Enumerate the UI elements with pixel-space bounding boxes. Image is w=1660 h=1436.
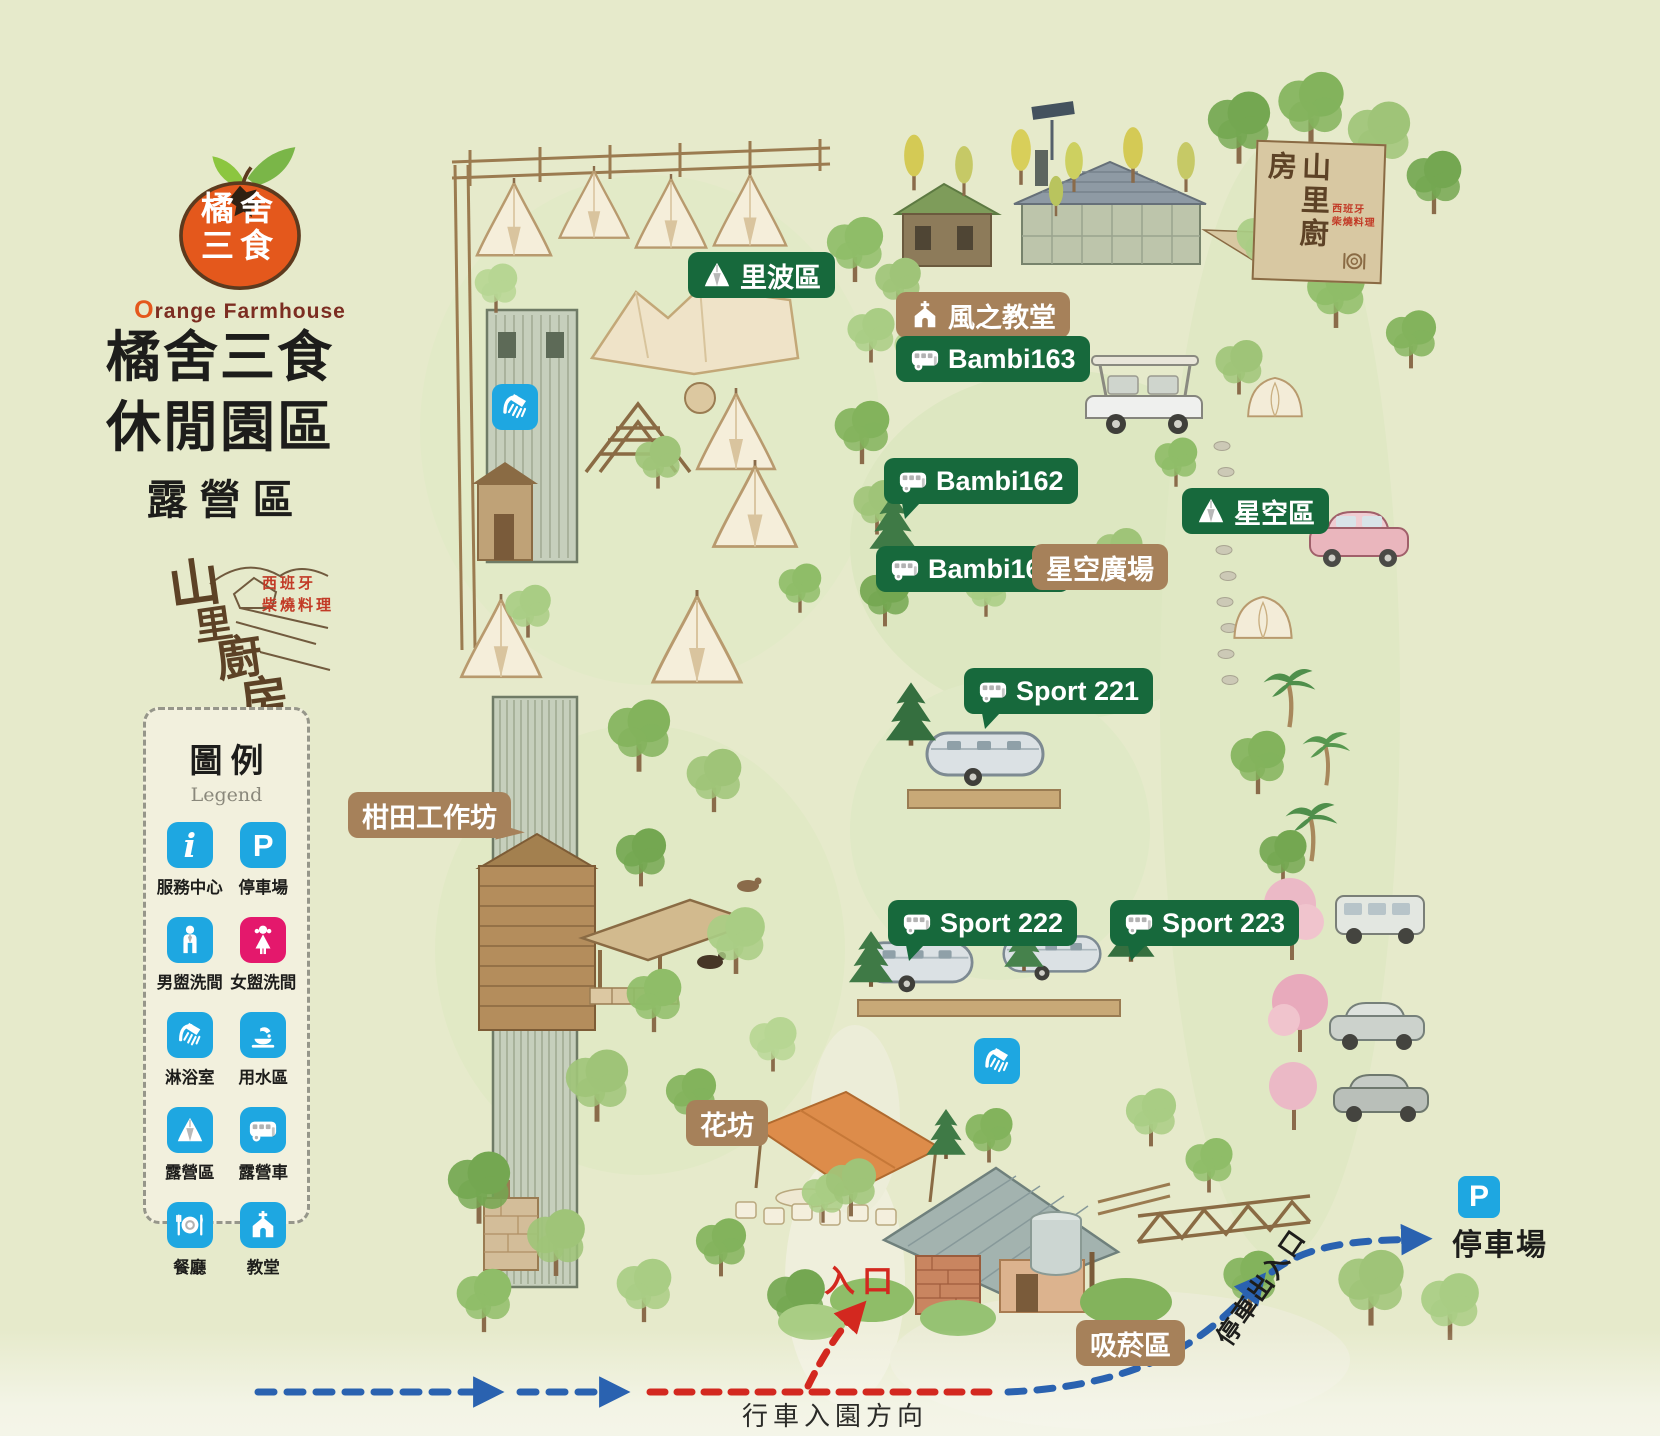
page-title-line1: 橘舍三食 <box>96 312 344 392</box>
legend-item-shower: 淋浴室 <box>154 1012 226 1088</box>
farm-buildings <box>896 101 1256 266</box>
legend-item-label: 男盥洗間 <box>157 969 223 993</box>
label-sport221[interactable]: Sport 221 <box>964 668 1153 714</box>
legend-item-church: 教堂 <box>228 1202 300 1278</box>
restaurant-icon <box>167 1202 213 1248</box>
tent-icon <box>1196 496 1226 526</box>
legend-item-service-center: i 服務中心 <box>154 822 226 898</box>
logo-text: 橘舍 三食 <box>140 190 340 264</box>
label-smoking-area[interactable]: 吸菸區 <box>1076 1320 1185 1366</box>
entrance-label: 入口 <box>824 1256 900 1301</box>
rv-icon <box>902 908 932 938</box>
church-icon <box>240 1202 286 1248</box>
label-star-area[interactable]: 星空區 <box>1182 488 1329 534</box>
tent-icon <box>167 1107 213 1153</box>
legend-item-label: 停車場 <box>239 874 289 898</box>
info-icon: i <box>167 822 213 868</box>
mountain-kitchen-logo: 山 里 廚 房 西班牙 柴燒料理 <box>150 532 350 692</box>
legend-panel: 圖例 Legend i 服務中心 P 停車場 男盥洗間 女盥洗間 淋浴室 用水區 <box>143 707 310 1224</box>
shower-icon[interactable] <box>974 1038 1020 1084</box>
label-pointer <box>906 945 924 961</box>
label-text: Sport 223 <box>1162 908 1285 939</box>
women-restroom-icon <box>240 917 286 963</box>
tent-icon <box>702 260 732 290</box>
label-text: 里波區 <box>740 256 821 295</box>
label-sport222[interactable]: Sport 222 <box>888 900 1077 946</box>
legend-item-rv: 露營車 <box>228 1107 300 1183</box>
label-bambi163[interactable]: Bambi163 <box>896 336 1090 382</box>
label-pointer <box>1128 945 1146 961</box>
legend-item-women-restroom: 女盥洗間 <box>228 917 300 993</box>
label-text: 星空區 <box>1234 492 1315 531</box>
legend-item-parking: P 停車場 <box>228 822 300 898</box>
legend-item-label: 淋浴室 <box>165 1064 215 1088</box>
shower-building <box>472 310 577 562</box>
shower-icon <box>167 1012 213 1058</box>
logo-text-line2: 三食 <box>140 227 340 264</box>
legend-item-label: 服務中心 <box>157 874 223 898</box>
legend-item-camping: 露營區 <box>154 1107 226 1183</box>
legend-subtitle: Legend <box>146 784 307 806</box>
legend-item-label: 露營車 <box>239 1159 289 1183</box>
signboard-tagline-line2: 柴燒料理 <box>1331 215 1375 230</box>
plate-icon <box>1342 249 1367 274</box>
legend-item-label: 餐廳 <box>173 1254 206 1278</box>
label-text: 柑田工作坊 <box>362 796 497 835</box>
parking-icon: P <box>240 822 286 868</box>
legend-item-label: 露營區 <box>165 1159 215 1183</box>
label-pointer <box>902 503 920 519</box>
rv-icon <box>978 676 1008 706</box>
legend-item-label: 教堂 <box>247 1254 280 1278</box>
label-text: 星空廣場 <box>1046 548 1154 587</box>
rv-icon <box>898 466 928 496</box>
drive-direction-label: 行車入園方向 <box>742 1396 928 1433</box>
parking-glyph: P <box>1469 1180 1489 1214</box>
label-text: 吸菸區 <box>1090 1324 1171 1363</box>
legend-item-restaurant: 餐廳 <box>154 1202 226 1278</box>
rv-icon <box>240 1107 286 1153</box>
label-wind-chapel[interactable]: 風之教堂 <box>896 292 1070 338</box>
church-icon <box>910 300 940 330</box>
label-bambi162[interactable]: Bambi162 <box>884 458 1078 504</box>
orange-farmhouse-logo: 橘舍 三食 <box>140 136 340 302</box>
camping-area-title: 露營區 <box>96 466 344 526</box>
label-gantian-workshop[interactable]: 柑田工作坊 <box>348 792 511 838</box>
parking-icon[interactable]: P <box>1458 1176 1500 1218</box>
label-text: Sport 221 <box>1016 676 1139 707</box>
label-flower-shop[interactable]: 花坊 <box>686 1100 768 1146</box>
label-text: Bambi162 <box>936 466 1064 497</box>
parking-label: 停車場 <box>1452 1220 1548 1264</box>
label-text: 風之教堂 <box>948 296 1056 335</box>
kitchen-tagline-line1: 西班牙 <box>262 572 316 593</box>
campground-map: 橘舍 三食 Orange Farmhouse 橘舍三食 休閒園區 露營區 山 里… <box>0 0 1660 1436</box>
kitchen-tagline-line2: 柴燒料理 <box>262 594 334 615</box>
signboard-text: 山里廚房 <box>1260 150 1332 280</box>
legend-item-water: 用水區 <box>228 1012 300 1088</box>
label-libo-area[interactable]: 里波區 <box>688 252 835 298</box>
rv-icon <box>910 344 940 374</box>
label-pointer <box>982 713 1000 729</box>
shower-icon[interactable] <box>492 384 538 430</box>
kitchen-signboard: 山里廚房 西班牙 柴燒料理 <box>1252 140 1387 284</box>
info-glyph: i <box>183 829 196 862</box>
rv-icon <box>890 554 920 584</box>
rv-icon <box>1124 908 1154 938</box>
legend-grid: i 服務中心 P 停車場 男盥洗間 女盥洗間 淋浴室 用水區 露營區 <box>146 822 307 1278</box>
brick-house <box>884 1168 1118 1314</box>
water-icon <box>240 1012 286 1058</box>
legend-item-label: 用水區 <box>239 1064 289 1088</box>
label-text: Sport 222 <box>940 908 1063 939</box>
legend-item-label: 女盥洗間 <box>230 969 296 993</box>
parking-glyph: P <box>253 830 274 861</box>
logo-text-line1: 橘舍 <box>140 190 340 227</box>
label-text: 花坊 <box>700 1104 754 1143</box>
legend-item-men-restroom: 男盥洗間 <box>154 917 226 993</box>
label-star-plaza[interactable]: 星空廣場 <box>1032 544 1168 590</box>
page-title-line2: 休閒園區 <box>96 382 344 462</box>
label-text: Bambi163 <box>948 344 1076 375</box>
men-restroom-icon <box>167 917 213 963</box>
signboard-tagline: 西班牙 柴燒料理 <box>1331 202 1376 230</box>
legend-title: 圖例 <box>146 734 307 782</box>
label-sport223[interactable]: Sport 223 <box>1110 900 1299 946</box>
